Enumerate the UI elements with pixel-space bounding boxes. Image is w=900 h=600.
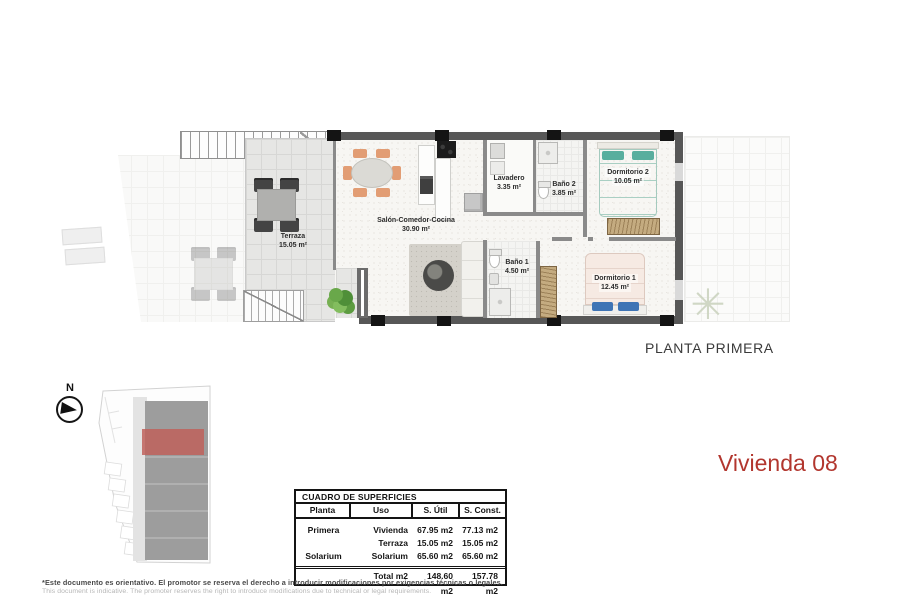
room-label-bano1: Baño 14.50 m² bbox=[495, 258, 539, 276]
col-header: Planta bbox=[296, 504, 351, 517]
wall-interior bbox=[609, 237, 676, 241]
washing-machine bbox=[490, 143, 505, 159]
oven bbox=[420, 176, 433, 194]
neighbour-unit-right: ✳ bbox=[684, 136, 790, 322]
dryer bbox=[490, 161, 505, 175]
neighbour-lounger bbox=[61, 227, 102, 246]
shower bbox=[538, 142, 558, 164]
pillar bbox=[437, 315, 451, 326]
disclaimer: *Este documento es orientativo. El promo… bbox=[42, 578, 542, 595]
wall-interior bbox=[552, 237, 572, 241]
table-row: Terraza 15.05 m2 15.05 m2 bbox=[296, 537, 505, 550]
wall-interior bbox=[483, 212, 583, 216]
palm-tree-icon: ✳ bbox=[688, 285, 728, 325]
table-body: Primera Vivienda 67.95 m2 77.13 m2 Terra… bbox=[296, 519, 505, 566]
floorplan: ✳ Terraza15.05 m² Salón-Com bbox=[115, 118, 790, 330]
neighbour-unit-left bbox=[115, 155, 245, 322]
pillar bbox=[371, 315, 385, 326]
north-arrow-pointer bbox=[60, 402, 78, 416]
neighbour-lounger bbox=[64, 247, 105, 266]
wardrobe bbox=[540, 266, 557, 318]
terrace-table-set bbox=[254, 178, 299, 232]
dining-set bbox=[343, 149, 401, 197]
pillar bbox=[660, 130, 674, 141]
window bbox=[675, 163, 683, 181]
highlighted-unit bbox=[142, 429, 204, 455]
fridge bbox=[464, 193, 483, 212]
plan-title: PLANTA PRIMERA bbox=[645, 340, 815, 356]
neighbour-furniture bbox=[191, 247, 236, 301]
pillar bbox=[660, 315, 674, 326]
disclaimer-en: This document is indicative. The promote… bbox=[42, 588, 542, 595]
disclaimer-es: *Este documento es orientativo. El promo… bbox=[42, 578, 542, 587]
col-header: S. Útil bbox=[413, 504, 460, 517]
wall-top bbox=[327, 132, 683, 140]
kitchen-island bbox=[435, 158, 451, 221]
site-location-map bbox=[85, 383, 211, 565]
wall-interior bbox=[588, 237, 593, 241]
wall-terrace bbox=[333, 138, 336, 270]
kitchen-counter bbox=[418, 145, 435, 205]
shower bbox=[489, 288, 511, 316]
room-label-dormitorio2: Dormitorio 210.05 m² bbox=[592, 168, 664, 186]
window bbox=[675, 280, 683, 300]
terrace-door bbox=[357, 268, 368, 318]
surface-table: CUADRO DE SUPERFICIES Planta Uso S. Útil… bbox=[294, 489, 507, 586]
table-header-row: Planta Uso S. Útil S. Const. bbox=[296, 504, 505, 519]
room-label-terraza: Terraza15.05 m² bbox=[261, 232, 325, 250]
room-label-salon: Salón-Comedor-Cocina30.90 m² bbox=[361, 216, 471, 234]
table-row: Primera Vivienda 67.95 m2 77.13 m2 bbox=[296, 524, 505, 537]
col-header: Uso bbox=[351, 504, 413, 517]
wardrobe bbox=[607, 218, 660, 235]
table-row: Solarium Solarium 65.60 m2 65.60 m2 bbox=[296, 550, 505, 563]
north-label: N bbox=[56, 382, 84, 394]
plant-icon bbox=[329, 288, 343, 302]
sofa bbox=[461, 241, 485, 317]
wall-interior bbox=[583, 140, 587, 237]
coffee-table bbox=[423, 260, 454, 291]
unit-title: Vivienda 08 bbox=[718, 450, 878, 477]
col-header: S. Const. bbox=[460, 504, 505, 517]
stairs bbox=[243, 290, 304, 322]
table-title: CUADRO DE SUPERFICIES bbox=[296, 491, 505, 504]
room-label-bano2: Baño 23.85 m² bbox=[545, 180, 583, 198]
pillar bbox=[327, 130, 341, 141]
room-label-dormitorio1: Dormitorio 112.45 m² bbox=[577, 274, 653, 292]
cooktop bbox=[437, 141, 456, 158]
room-label-lavadero: Lavadero3.35 m² bbox=[483, 174, 535, 192]
pillar bbox=[435, 130, 449, 141]
